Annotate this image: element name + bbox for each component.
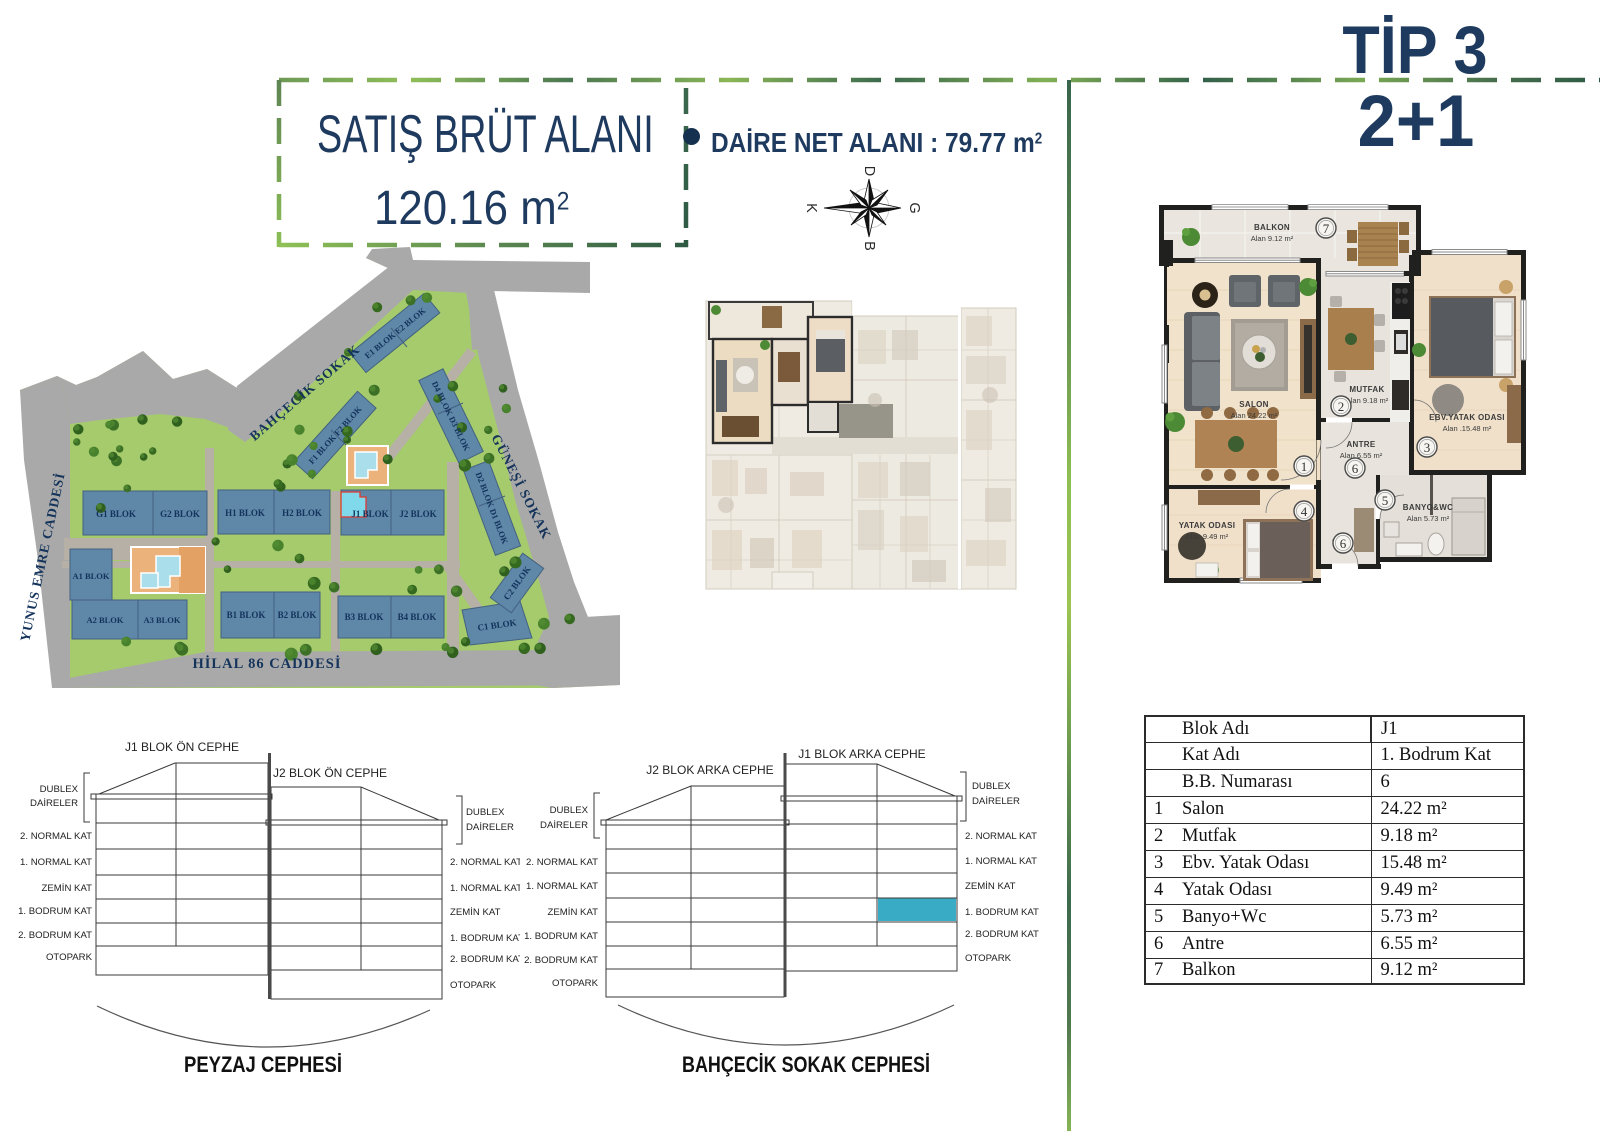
svg-text:B3 BLOK: B3 BLOK: [345, 612, 384, 622]
svg-text:SALON: SALON: [1239, 400, 1269, 409]
svg-text:PEYZAJ CEPHESİ: PEYZAJ CEPHESİ: [184, 1052, 342, 1077]
svg-text:BANYO&WC: BANYO&WC: [1403, 503, 1453, 512]
svg-text:DAİRELER: DAİRELER: [466, 822, 514, 833]
svg-text:ZEMİN KAT: ZEMİN KAT: [965, 881, 1016, 892]
svg-text:B2 BLOK: B2 BLOK: [278, 610, 317, 620]
svg-text:G1 BLOK: G1 BLOK: [96, 509, 136, 519]
svg-text:1. BODRUM KAT: 1. BODRUM KAT: [965, 907, 1039, 918]
svg-text:2. BODRUM KAT: 2. BODRUM KAT: [965, 929, 1039, 940]
svg-text:J1 BLOK: J1 BLOK: [351, 509, 388, 519]
svg-text:1. NORMAL KAT: 1. NORMAL KAT: [20, 857, 92, 868]
svg-text:DAİRELER: DAİRELER: [972, 796, 1020, 807]
svg-text:2. BODRUM KAT: 2. BODRUM KAT: [524, 955, 598, 966]
svg-text:DUBLEX: DUBLEX: [972, 781, 1011, 792]
svg-text:1. NORMAL KAT: 1. NORMAL KAT: [526, 881, 598, 892]
svg-text:2: 2: [1338, 399, 1345, 414]
svg-text:2. BODRUM KAT: 2. BODRUM KAT: [18, 930, 92, 941]
svg-text:A3 BLOK: A3 BLOK: [143, 615, 180, 625]
svg-text:5: 5: [1382, 493, 1389, 508]
svg-text:J1 BLOK ARKA CEPHE: J1 BLOK ARKA CEPHE: [798, 747, 925, 761]
svg-text:J2 BLOK ÖN CEPHE: J2 BLOK ÖN CEPHE: [273, 766, 387, 780]
svg-text:J1 BLOK ÖN CEPHE: J1 BLOK ÖN CEPHE: [125, 740, 239, 754]
svg-text:B1 BLOK: B1 BLOK: [227, 610, 266, 620]
svg-text:1. BODRUM KAT: 1. BODRUM KAT: [450, 933, 520, 944]
svg-text:DAİRELER: DAİRELER: [30, 798, 78, 809]
svg-text:Alan 24.22 m²: Alan 24.22 m²: [1231, 411, 1278, 420]
svg-text:DUBLEX: DUBLEX: [466, 807, 505, 818]
svg-text:Alan 9.18 m²: Alan 9.18 m²: [1346, 396, 1389, 405]
svg-text:1. BODRUM KAT: 1. BODRUM KAT: [18, 906, 92, 917]
svg-text:OTOPARK: OTOPARK: [965, 953, 1012, 964]
svg-text:2. NORMAL KAT: 2. NORMAL KAT: [526, 857, 598, 868]
svg-text:ZEMİN KAT: ZEMİN KAT: [548, 907, 599, 918]
svg-text:6: 6: [1352, 461, 1359, 476]
svg-text:OTOPARK: OTOPARK: [552, 978, 599, 989]
svg-text:MUTFAK: MUTFAK: [1349, 385, 1384, 394]
svg-text:G2 BLOK: G2 BLOK: [160, 509, 200, 519]
svg-text:ANTRE: ANTRE: [1346, 440, 1375, 449]
svg-text:J2 BLOK ARKA CEPHE: J2 BLOK ARKA CEPHE: [646, 763, 773, 777]
svg-text:7: 7: [1323, 221, 1330, 236]
svg-text:H2 BLOK: H2 BLOK: [282, 508, 322, 518]
svg-text:6: 6: [1340, 536, 1347, 551]
svg-text:A2 BLOK: A2 BLOK: [86, 615, 123, 625]
svg-text:OTOPARK: OTOPARK: [46, 952, 93, 963]
svg-text:B: B: [861, 241, 877, 251]
svg-text:J2 BLOK: J2 BLOK: [399, 509, 436, 519]
svg-text:G: G: [906, 202, 922, 213]
svg-text:DUBLEX: DUBLEX: [550, 805, 589, 816]
svg-text:Alan 5.73 m²: Alan 5.73 m²: [1407, 514, 1450, 523]
svg-text:1: 1: [1301, 459, 1308, 474]
svg-text:Alan 6.55 m²: Alan 6.55 m²: [1340, 451, 1383, 460]
svg-text:D: D: [861, 166, 877, 176]
svg-text:2. NORMAL KAT: 2. NORMAL KAT: [450, 857, 520, 868]
svg-text:BAHÇECİK SOKAK CEPHESİ: BAHÇECİK SOKAK CEPHESİ: [682, 1052, 930, 1077]
svg-text:2. BODRUM KAT: 2. BODRUM KAT: [450, 954, 520, 965]
svg-text:Alan 9.49 m²: Alan 9.49 m²: [1186, 532, 1229, 541]
svg-text:A1 BLOK: A1 BLOK: [72, 571, 109, 581]
svg-text:HİLAL 86 CADDESİ: HİLAL 86 CADDESİ: [193, 655, 342, 672]
svg-text:K: K: [803, 203, 819, 213]
svg-text:ZEMİN KAT: ZEMİN KAT: [450, 907, 501, 918]
svg-text:EBV.YATAK ODASI: EBV.YATAK ODASI: [1429, 413, 1505, 422]
svg-text:ZEMİN KAT: ZEMİN KAT: [42, 883, 93, 894]
svg-text:H1 BLOK: H1 BLOK: [225, 508, 265, 518]
svg-text:2. NORMAL KAT: 2. NORMAL KAT: [20, 831, 92, 842]
svg-text:OTOPARK: OTOPARK: [450, 980, 497, 991]
svg-text:3: 3: [1424, 440, 1431, 455]
svg-text:1. BODRUM KAT: 1. BODRUM KAT: [524, 931, 598, 942]
svg-text:1. NORMAL KAT: 1. NORMAL KAT: [450, 883, 520, 894]
svg-text:B4 BLOK: B4 BLOK: [398, 612, 437, 622]
svg-text:BALKON: BALKON: [1254, 223, 1290, 232]
svg-text:YATAK ODASI: YATAK ODASI: [1179, 521, 1236, 530]
svg-text:DAİRELER: DAİRELER: [540, 820, 588, 831]
svg-text:2. NORMAL KAT: 2. NORMAL KAT: [965, 831, 1037, 842]
svg-text:Alan .15.48 m²: Alan .15.48 m²: [1443, 424, 1492, 433]
svg-text:Alan 9.12 m²: Alan 9.12 m²: [1251, 234, 1294, 243]
svg-text:DUBLEX: DUBLEX: [40, 784, 79, 795]
svg-text:1. NORMAL KAT: 1. NORMAL KAT: [965, 856, 1037, 867]
svg-text:4: 4: [1301, 504, 1308, 519]
